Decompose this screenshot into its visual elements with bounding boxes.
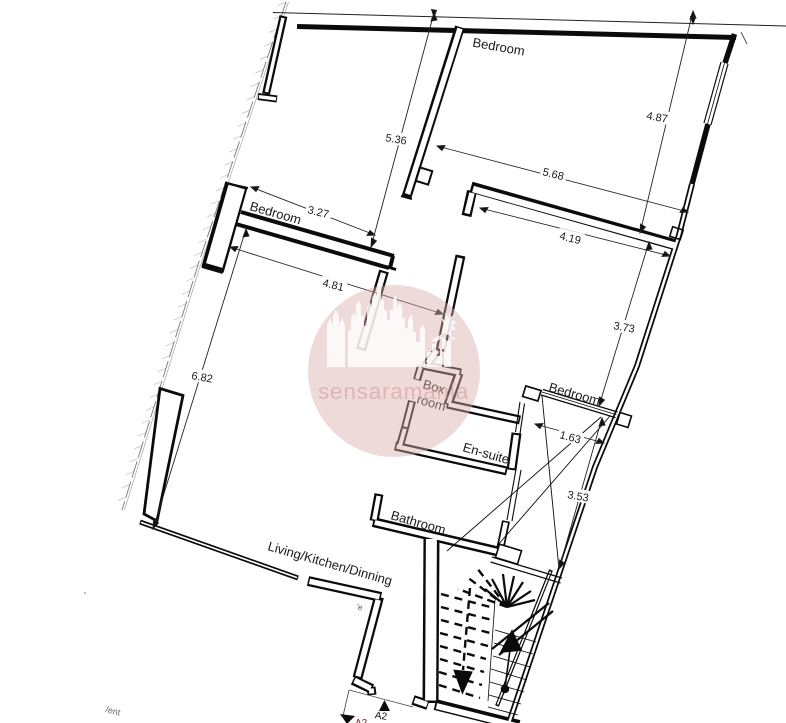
svg-text:A2: A2 [355, 718, 368, 723]
svg-text:sensaramania: sensaramania [318, 379, 469, 404]
svg-text:A2: A2 [374, 710, 388, 723]
